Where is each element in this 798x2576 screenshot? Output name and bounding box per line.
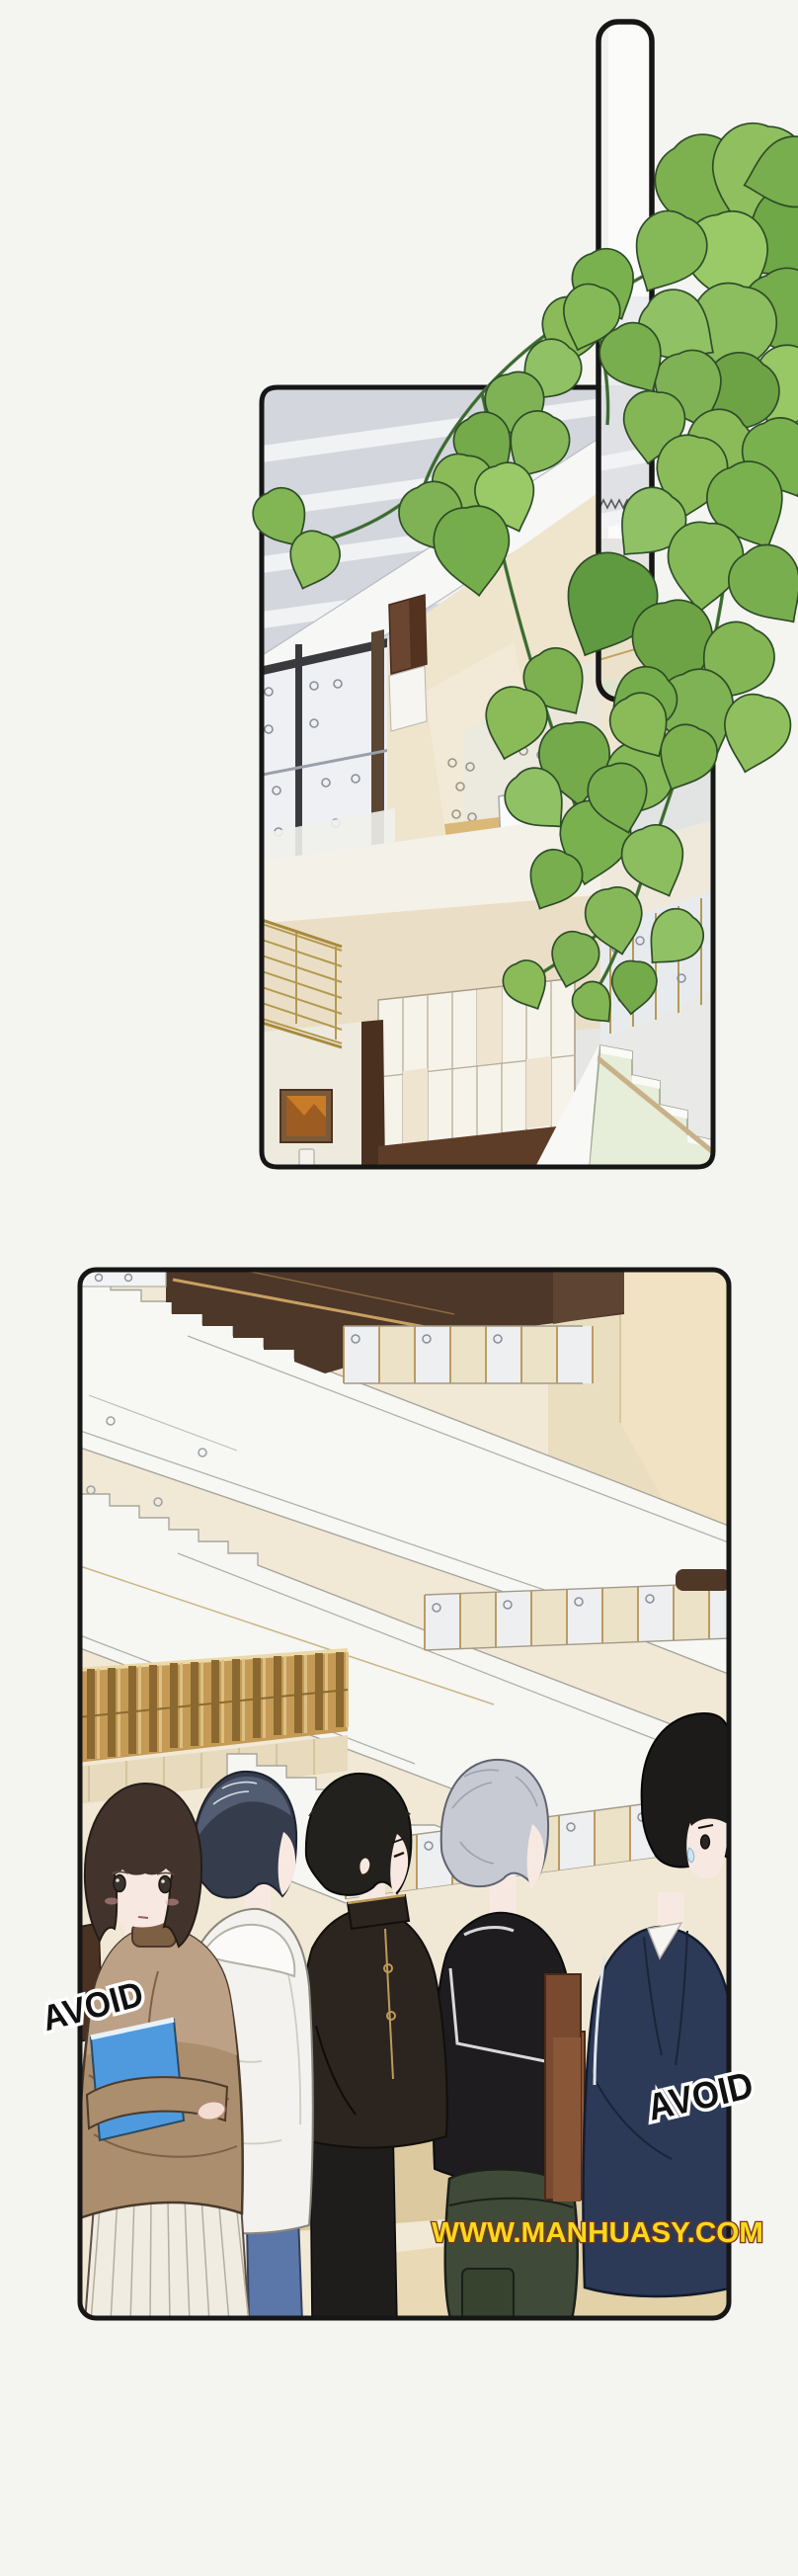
svg-text:WWW.MANHUASY.COM: WWW.MANHUASY.COM [432,2217,763,2249]
